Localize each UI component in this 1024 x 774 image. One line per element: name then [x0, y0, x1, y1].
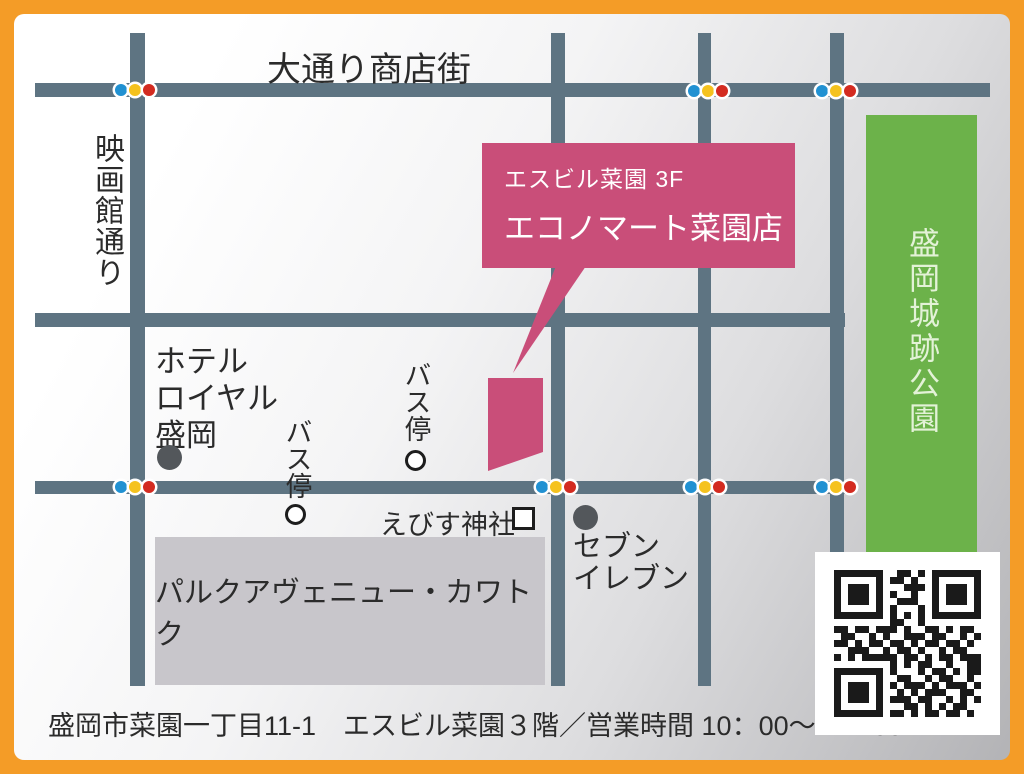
store-callout-name: エコノマート菜園店: [504, 203, 795, 248]
store-callout-floor: エスビル菜園 3F: [504, 160, 795, 194]
park-morioka-castle: 盛岡城跡公園: [866, 115, 977, 552]
address-line: 盛岡市菜園一丁目11-1 エスビル菜園３階／営業時間 10：00～17：00: [48, 704, 903, 743]
road-vertical-2: [551, 33, 565, 686]
map-card: 大通り商店街 映画館通り 盛岡城跡公園 パルクアヴェニュー・カワトク ホテルロイ…: [0, 0, 1024, 774]
shrine-marker-icon: [512, 507, 535, 530]
traffic-light-icon: [115, 481, 155, 493]
road-eigakan-dori: [130, 33, 145, 686]
hotel-marker-dot: [157, 445, 182, 470]
map-canvas: 大通り商店街 映画館通り 盛岡城跡公園 パルクアヴェニュー・カワトク ホテルロイ…: [14, 14, 1010, 760]
traffic-light-icon: [115, 84, 155, 96]
traffic-light-icon: [685, 481, 725, 493]
traffic-light-icon: [536, 481, 576, 493]
store-callout: エスビル菜園 3F エコノマート菜園店: [482, 143, 795, 268]
road-middle: [35, 313, 845, 327]
traffic-light-icon: [816, 481, 856, 493]
qr-code-pattern: [834, 570, 981, 717]
traffic-light-icon: [816, 85, 856, 97]
traffic-light-icon: [688, 85, 728, 97]
road-vertical-3: [698, 33, 711, 686]
building-kawatoku: パルクアヴェニュー・カワトク: [155, 537, 545, 685]
street-label-odori-shotengai: 大通り商店街: [267, 42, 471, 91]
bus-stop-label-east: バス停: [401, 361, 429, 442]
hotel-label: ホテルロイヤル盛岡: [155, 343, 278, 454]
bus-stop-label-west: バス停: [282, 418, 310, 499]
road-south: [35, 481, 855, 494]
shrine-label: えびす神社: [380, 503, 515, 542]
qr-code: [815, 552, 1000, 735]
seven-eleven-marker-dot: [573, 505, 598, 530]
park-label: 盛岡城跡公園: [899, 227, 944, 552]
bus-stop-circle-icon: [405, 450, 426, 471]
building-kawatoku-label: パルクアヴェニュー・カワトク: [155, 569, 545, 653]
street-label-eigakan-dori: 映画館通り: [84, 133, 128, 288]
road-vertical-4: [830, 33, 844, 553]
seven-eleven-label: セブンイレブン: [573, 531, 689, 595]
store-building-shape: [488, 378, 543, 471]
bus-stop-circle-icon: [285, 504, 306, 525]
